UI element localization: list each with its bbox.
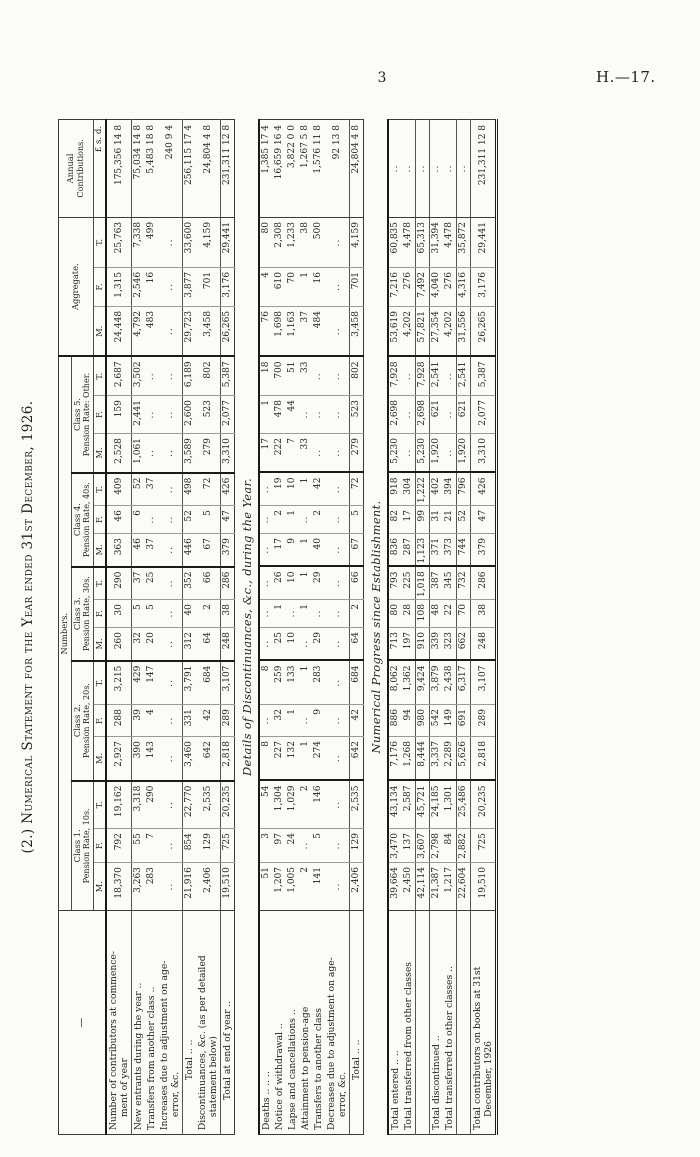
cell: 32 — [132, 628, 146, 661]
cell: 286 — [471, 567, 497, 600]
cell: 3,337 — [430, 737, 444, 781]
cell: 1,217 — [443, 863, 457, 911]
cell: 29,441 — [471, 218, 497, 268]
cell: 2,438 — [443, 661, 457, 705]
cell: 662 — [457, 628, 471, 661]
row-label: Total at end of year .. — [221, 911, 235, 1135]
cell: 37 — [299, 307, 312, 357]
cell: 66 — [196, 567, 221, 600]
cell: 256,115 17 4 — [183, 119, 197, 217]
cell: 732 — [457, 567, 471, 600]
cell: 24,804 4 8 — [196, 119, 221, 217]
sex-column-header: F. — [93, 267, 106, 306]
cell: 1,304 — [273, 781, 286, 829]
cell: .. — [325, 268, 350, 307]
rotated-content: (2.) Numerical Statement for the Year en… — [20, 112, 580, 1142]
cell: 141 — [312, 863, 325, 911]
table-row: Total transferred to other classes ..1,2… — [443, 120, 457, 1135]
sex-column-header: M. — [93, 306, 106, 356]
cell: 10 — [286, 567, 299, 600]
cell: 70 — [286, 268, 299, 307]
cell: .. — [259, 600, 273, 628]
cell: .. — [325, 434, 350, 473]
cell: .. — [388, 120, 402, 218]
cell: 288 — [106, 705, 132, 737]
cell: 260 — [106, 628, 132, 661]
cell: 8 — [259, 737, 273, 781]
cell: 1,123 — [416, 534, 430, 567]
cell: 47 — [471, 506, 497, 534]
cell: .. — [158, 356, 183, 395]
cell: 227 — [273, 737, 286, 781]
cell: .. — [325, 218, 350, 268]
cell: 9,424 — [416, 661, 430, 705]
cell: 542 — [430, 705, 444, 737]
table-row: Lapse and cancellations ..1,005241,02913… — [286, 120, 299, 1135]
row-label — [457, 911, 471, 1135]
cell: .. — [158, 661, 183, 705]
table-row: Total contributors on books at 31stDecem… — [471, 120, 497, 1135]
cell: 2,541 — [457, 357, 471, 396]
cell: 1,233 — [286, 218, 299, 268]
cell: 22,604 — [457, 863, 471, 911]
cell: 1,920 — [430, 434, 444, 473]
cell: 1 — [299, 737, 312, 781]
cell: 802 — [350, 357, 364, 396]
row-label: Notice of withdrawal .. — [273, 911, 286, 1135]
cell: 5,230 — [388, 434, 402, 473]
cell: .. — [158, 781, 183, 829]
cell: 25,763 — [106, 217, 132, 267]
cell: 3,176 — [221, 267, 235, 306]
cell: 5 — [196, 506, 221, 534]
cell: .. — [145, 506, 158, 534]
cell: 409 — [106, 473, 132, 506]
cell: 2,308 — [273, 218, 286, 268]
cell: 51 — [259, 863, 273, 911]
cell: 352 — [183, 567, 197, 600]
cell: .. — [416, 120, 430, 218]
cell: 4 — [259, 268, 273, 307]
cell: 3,458 — [196, 306, 221, 356]
cell: 19 — [273, 473, 286, 506]
cell: 24,185 — [430, 781, 444, 829]
cell: 80 — [259, 218, 273, 268]
cell: .. — [325, 863, 350, 911]
cell: 3,107 — [471, 661, 497, 705]
cell: 429 — [132, 661, 146, 705]
cell: 33,600 — [183, 217, 197, 267]
cell: .. — [299, 506, 312, 534]
document-page: 3 H.—17. (2.) Numerical Statement for th… — [0, 0, 700, 1157]
cell: 3,215 — [106, 661, 132, 705]
cell: .. — [312, 434, 325, 473]
cell: 2,406 — [196, 863, 221, 911]
cell: .. — [259, 534, 273, 567]
cell: 1,267 5 8 — [299, 120, 312, 218]
cell: 3,877 — [183, 267, 197, 306]
cell: 29 — [312, 628, 325, 661]
table-row: Discontinuances, &c. (as per detailedsta… — [196, 119, 221, 1134]
cell: .. — [325, 396, 350, 434]
cell: 4,478 — [443, 218, 457, 268]
cell: 7 — [145, 829, 158, 863]
cell: 35,872 — [457, 218, 471, 268]
cell: 3,318 — [132, 781, 146, 829]
table-row: Notice of withdrawal ..1,207971,30422732… — [273, 120, 286, 1135]
cell: 1 — [299, 534, 312, 567]
table-row: Decreases due to adjustment on age-error… — [325, 120, 350, 1135]
cell: .. — [158, 267, 183, 306]
cell: .. — [325, 473, 350, 506]
row-label: Transfers to another class — [312, 911, 325, 1135]
cell: 279 — [350, 434, 364, 473]
statement-title: (2.) Numerical Statement for the Year en… — [20, 112, 36, 1142]
cell: 4,202 — [443, 307, 457, 357]
statement-table: Total entered .. ..39,6643,47043,1347,17… — [387, 119, 498, 1135]
cell: .. — [402, 434, 416, 473]
cell: 7,338 — [132, 217, 146, 267]
cell: 129 — [350, 829, 364, 863]
cell: 3,310 — [471, 434, 497, 473]
cell: 67 — [196, 534, 221, 567]
cell: 19,510 — [471, 863, 497, 911]
sex-column-header: M. — [93, 737, 106, 781]
cell: 42,114 — [416, 863, 430, 911]
cell: 29,441 — [221, 217, 235, 267]
cell: 16 — [145, 267, 158, 306]
cell: 5 — [350, 506, 364, 534]
cell: 19,162 — [106, 781, 132, 829]
cell: 2,077 — [221, 396, 235, 434]
cell: 80 — [388, 600, 402, 628]
cell: .. — [443, 120, 457, 218]
cell: 2,882 — [457, 829, 471, 863]
cell: 57,821 — [416, 307, 430, 357]
table-row: Deaths .. .. ..513548..8............1711… — [259, 120, 273, 1135]
cell: 6,317 — [457, 661, 471, 705]
currency-column-header: £ s. d. — [93, 119, 106, 217]
cell: 4,159 — [350, 218, 364, 268]
class-group-header: Class 5.Pension Rate: Other. — [71, 356, 93, 472]
table-row: Attainment to pension-age2..21..1..111..… — [299, 120, 312, 1135]
cell: .. — [325, 534, 350, 567]
cell: 691 — [457, 705, 471, 737]
sex-column-header: F. — [93, 506, 106, 534]
cell: 2,698 — [416, 396, 430, 434]
cell: 3,822 0 0 — [286, 120, 299, 218]
cell: 240 9 4 — [158, 119, 183, 217]
sex-column-header: M. — [93, 628, 106, 661]
cell: .. — [299, 829, 312, 863]
cell: 2,587 — [402, 781, 416, 829]
cell: 72 — [196, 473, 221, 506]
cell: 312 — [183, 628, 197, 661]
cell: 18 — [259, 357, 273, 396]
cell: 25,486 — [457, 781, 471, 829]
cell: .. — [158, 534, 183, 567]
cell: .. — [325, 600, 350, 628]
cell: 1,301 — [443, 781, 457, 829]
cell: 1,018 — [416, 567, 430, 600]
cell: .. — [158, 473, 183, 506]
cell: .. — [145, 396, 158, 434]
cell: .. — [325, 705, 350, 737]
cell: 684 — [196, 661, 221, 705]
cell: 20 — [145, 628, 158, 661]
cell: 1,698 — [273, 307, 286, 357]
cell: 5,230 — [416, 434, 430, 473]
cell: .. — [402, 396, 416, 434]
table-row: 22,6042,88225,4865,6266916,3176627073274… — [457, 120, 471, 1135]
sex-column-header: T. — [93, 217, 106, 267]
table-row: Total entered .. ..39,6643,47043,1347,17… — [388, 120, 402, 1135]
class-group-header: Class 4.Pension Rate, 40s. — [71, 473, 93, 567]
cell: 279 — [196, 434, 221, 473]
sex-column-header: T. — [93, 781, 106, 829]
cell: .. — [158, 600, 183, 628]
sex-column-header: F. — [93, 396, 106, 434]
cell: 371 — [430, 534, 444, 567]
cell: 197 — [402, 628, 416, 661]
cell: .. — [457, 120, 471, 218]
cell: 379 — [221, 534, 235, 567]
cell: .. — [312, 396, 325, 434]
cell: 1,163 — [286, 307, 299, 357]
cell: 38 — [299, 218, 312, 268]
cell: 64 — [350, 628, 364, 661]
row-label — [416, 911, 430, 1135]
cell: 2 — [312, 506, 325, 534]
cell: 27,354 — [430, 307, 444, 357]
row-label: Total contributors on books at 31stDecem… — [471, 911, 497, 1135]
cell: 484 — [312, 307, 325, 357]
cell: 2,600 — [183, 396, 197, 434]
cell: 701 — [350, 268, 364, 307]
cell: 20,235 — [221, 781, 235, 829]
cell: 84 — [443, 829, 457, 863]
cell: 345 — [443, 567, 457, 600]
cell: 394 — [443, 473, 457, 506]
cell: 175,356 14 8 — [106, 119, 132, 217]
cell: 20,235 — [471, 781, 497, 829]
cell: 42 — [196, 705, 221, 737]
cell: 137 — [402, 829, 416, 863]
class-group-header: Class 1.Pension Rate, 10s. — [71, 781, 93, 911]
cell: 387 — [430, 567, 444, 600]
row-label: Lapse and cancellations .. — [286, 911, 299, 1135]
cell: 1 — [299, 567, 312, 600]
cell: 21,387 — [430, 863, 444, 911]
cell: 2,077 — [471, 396, 497, 434]
cell: 16 — [312, 268, 325, 307]
cell: 46 — [132, 534, 146, 567]
cell: .. — [158, 306, 183, 356]
cell: .. — [259, 473, 273, 506]
cell: .. — [430, 120, 444, 218]
cell: 8,444 — [416, 737, 430, 781]
statement-table: —Numbers.Aggregate.AnnualContributions.C… — [58, 119, 235, 1135]
table-row: Total .. ..2,4061292,5356424268464266675… — [350, 120, 364, 1135]
cell: 53,619 — [388, 307, 402, 357]
cell: 9 — [286, 534, 299, 567]
cell: 483 — [145, 306, 158, 356]
cell: 379 — [471, 534, 497, 567]
table-row: Transfers from another class ..283729014… — [145, 119, 158, 1134]
aggregate-header: Aggregate. — [59, 217, 94, 356]
cell: 2,450 — [402, 863, 416, 911]
sex-column-header: F. — [93, 829, 106, 863]
cell: 2,441 — [132, 396, 146, 434]
cell: 31,556 — [457, 307, 471, 357]
row-label: Increases due to adjustment on age-error… — [158, 911, 183, 1135]
cell: 836 — [388, 534, 402, 567]
sex-column-header: M. — [93, 434, 106, 473]
cell: 910 — [416, 628, 430, 661]
cell: 523 — [350, 396, 364, 434]
cell: .. — [402, 357, 416, 396]
cell: .. — [145, 434, 158, 473]
cell: 2,698 — [388, 396, 402, 434]
cell: 287 — [402, 534, 416, 567]
cell: 7 — [286, 434, 299, 473]
cell: .. — [286, 600, 299, 628]
cell: 21,916 — [183, 863, 197, 911]
cell: 2,798 — [430, 829, 444, 863]
cell: 7,492 — [416, 268, 430, 307]
cell: 1,222 — [416, 473, 430, 506]
cell: 426 — [221, 473, 235, 506]
cell: 47 — [221, 506, 235, 534]
cell: .. — [259, 628, 273, 661]
sex-column-header: M. — [93, 534, 106, 567]
cell: 3,589 — [183, 434, 197, 473]
cell: 40 — [183, 600, 197, 628]
cell: 642 — [196, 737, 221, 781]
cell: 2,818 — [471, 737, 497, 781]
cell: 323 — [443, 628, 457, 661]
cell: .. — [325, 628, 350, 661]
stub-header: — — [59, 911, 107, 1135]
row-label: Deaths .. .. .. — [259, 911, 273, 1135]
cell: 4,792 — [132, 306, 146, 356]
cell: 499 — [145, 217, 158, 267]
cell: 1,005 — [286, 863, 299, 911]
cell: 33 — [299, 434, 312, 473]
cell: 1 — [299, 600, 312, 628]
cell: 4 — [145, 705, 158, 737]
row-label: Decreases due to adjustment on age-error… — [325, 911, 350, 1135]
cell: 2 — [299, 781, 312, 829]
cell: 3,176 — [471, 268, 497, 307]
cell: 1,385 17 4 — [259, 120, 273, 218]
cell: 45,721 — [416, 781, 430, 829]
cell: 39 — [132, 705, 146, 737]
cell: 1,207 — [273, 863, 286, 911]
cell: 97 — [273, 829, 286, 863]
sex-column-header: F. — [93, 705, 106, 737]
cell: 8 — [259, 661, 273, 705]
cell: .. — [259, 567, 273, 600]
cell: 725 — [221, 829, 235, 863]
cell: 3,502 — [132, 356, 146, 395]
cell: 390 — [132, 737, 146, 781]
sex-column-header: T. — [93, 356, 106, 395]
cell: 24 — [286, 829, 299, 863]
cell: 149 — [443, 705, 457, 737]
cell: 1 — [299, 268, 312, 307]
cell: 3,263 — [132, 863, 146, 911]
cell: 38 — [471, 600, 497, 628]
row-label: Number of contributors at commence-ment … — [106, 911, 132, 1135]
cell: 66 — [350, 567, 364, 600]
cell: .. — [402, 120, 416, 218]
cell: 289 — [221, 705, 235, 737]
cell: 276 — [443, 268, 457, 307]
cell: 19,510 — [221, 863, 235, 911]
cell: 4,316 — [457, 268, 471, 307]
table-row: Total transferred from other classes2,45… — [402, 120, 416, 1135]
cell: .. — [158, 737, 183, 781]
row-label: Total discontinued .. — [430, 911, 444, 1135]
cell: 76 — [259, 307, 273, 357]
cell: 3,607 — [416, 829, 430, 863]
cell: 725 — [471, 829, 497, 863]
cell: 5,483 18 8 — [145, 119, 158, 217]
cell: 1,268 — [402, 737, 416, 781]
cell: 5 — [312, 829, 325, 863]
cell: 70 — [457, 600, 471, 628]
table-row: Transfers to another class14151462749283… — [312, 120, 325, 1135]
cell: 6 — [132, 506, 146, 534]
cell: 796 — [457, 473, 471, 506]
cell: 642 — [350, 737, 364, 781]
row-label: Discontinuances, &c. (as per detailedsta… — [196, 911, 221, 1135]
cell: 3,791 — [183, 661, 197, 705]
cell: 621 — [457, 396, 471, 434]
cell: 886 — [388, 705, 402, 737]
cell: 4,202 — [402, 307, 416, 357]
cell: 99 — [416, 506, 430, 534]
cell: 18,370 — [106, 863, 132, 911]
cell: 60,835 — [388, 218, 402, 268]
cell: 7,928 — [388, 357, 402, 396]
cell: .. — [158, 567, 183, 600]
sex-column-header: T. — [93, 567, 106, 600]
table-row: Increases due to adjustment on age-error… — [158, 119, 183, 1134]
cell: 2,535 — [196, 781, 221, 829]
cell: 1 — [286, 506, 299, 534]
cell: 52 — [132, 473, 146, 506]
table-row: 42,1143,60745,7218,4449809,4249101081,01… — [416, 120, 430, 1135]
cell: 331 — [183, 705, 197, 737]
cell: 1,315 — [106, 267, 132, 306]
cell: 854 — [183, 829, 197, 863]
cell: 37 — [145, 473, 158, 506]
sex-column-header: T. — [93, 661, 106, 705]
cell: 304 — [402, 473, 416, 506]
cell: .. — [259, 705, 273, 737]
cell: 29,723 — [183, 306, 197, 356]
cell: 498 — [183, 473, 197, 506]
cell: 132 — [286, 737, 299, 781]
cell: 25 — [273, 628, 286, 661]
cell: 276 — [402, 268, 416, 307]
cell: 40 — [312, 534, 325, 567]
row-label: Total .. .. — [183, 911, 197, 1135]
cell: 713 — [388, 628, 402, 661]
cell: 290 — [106, 567, 132, 600]
